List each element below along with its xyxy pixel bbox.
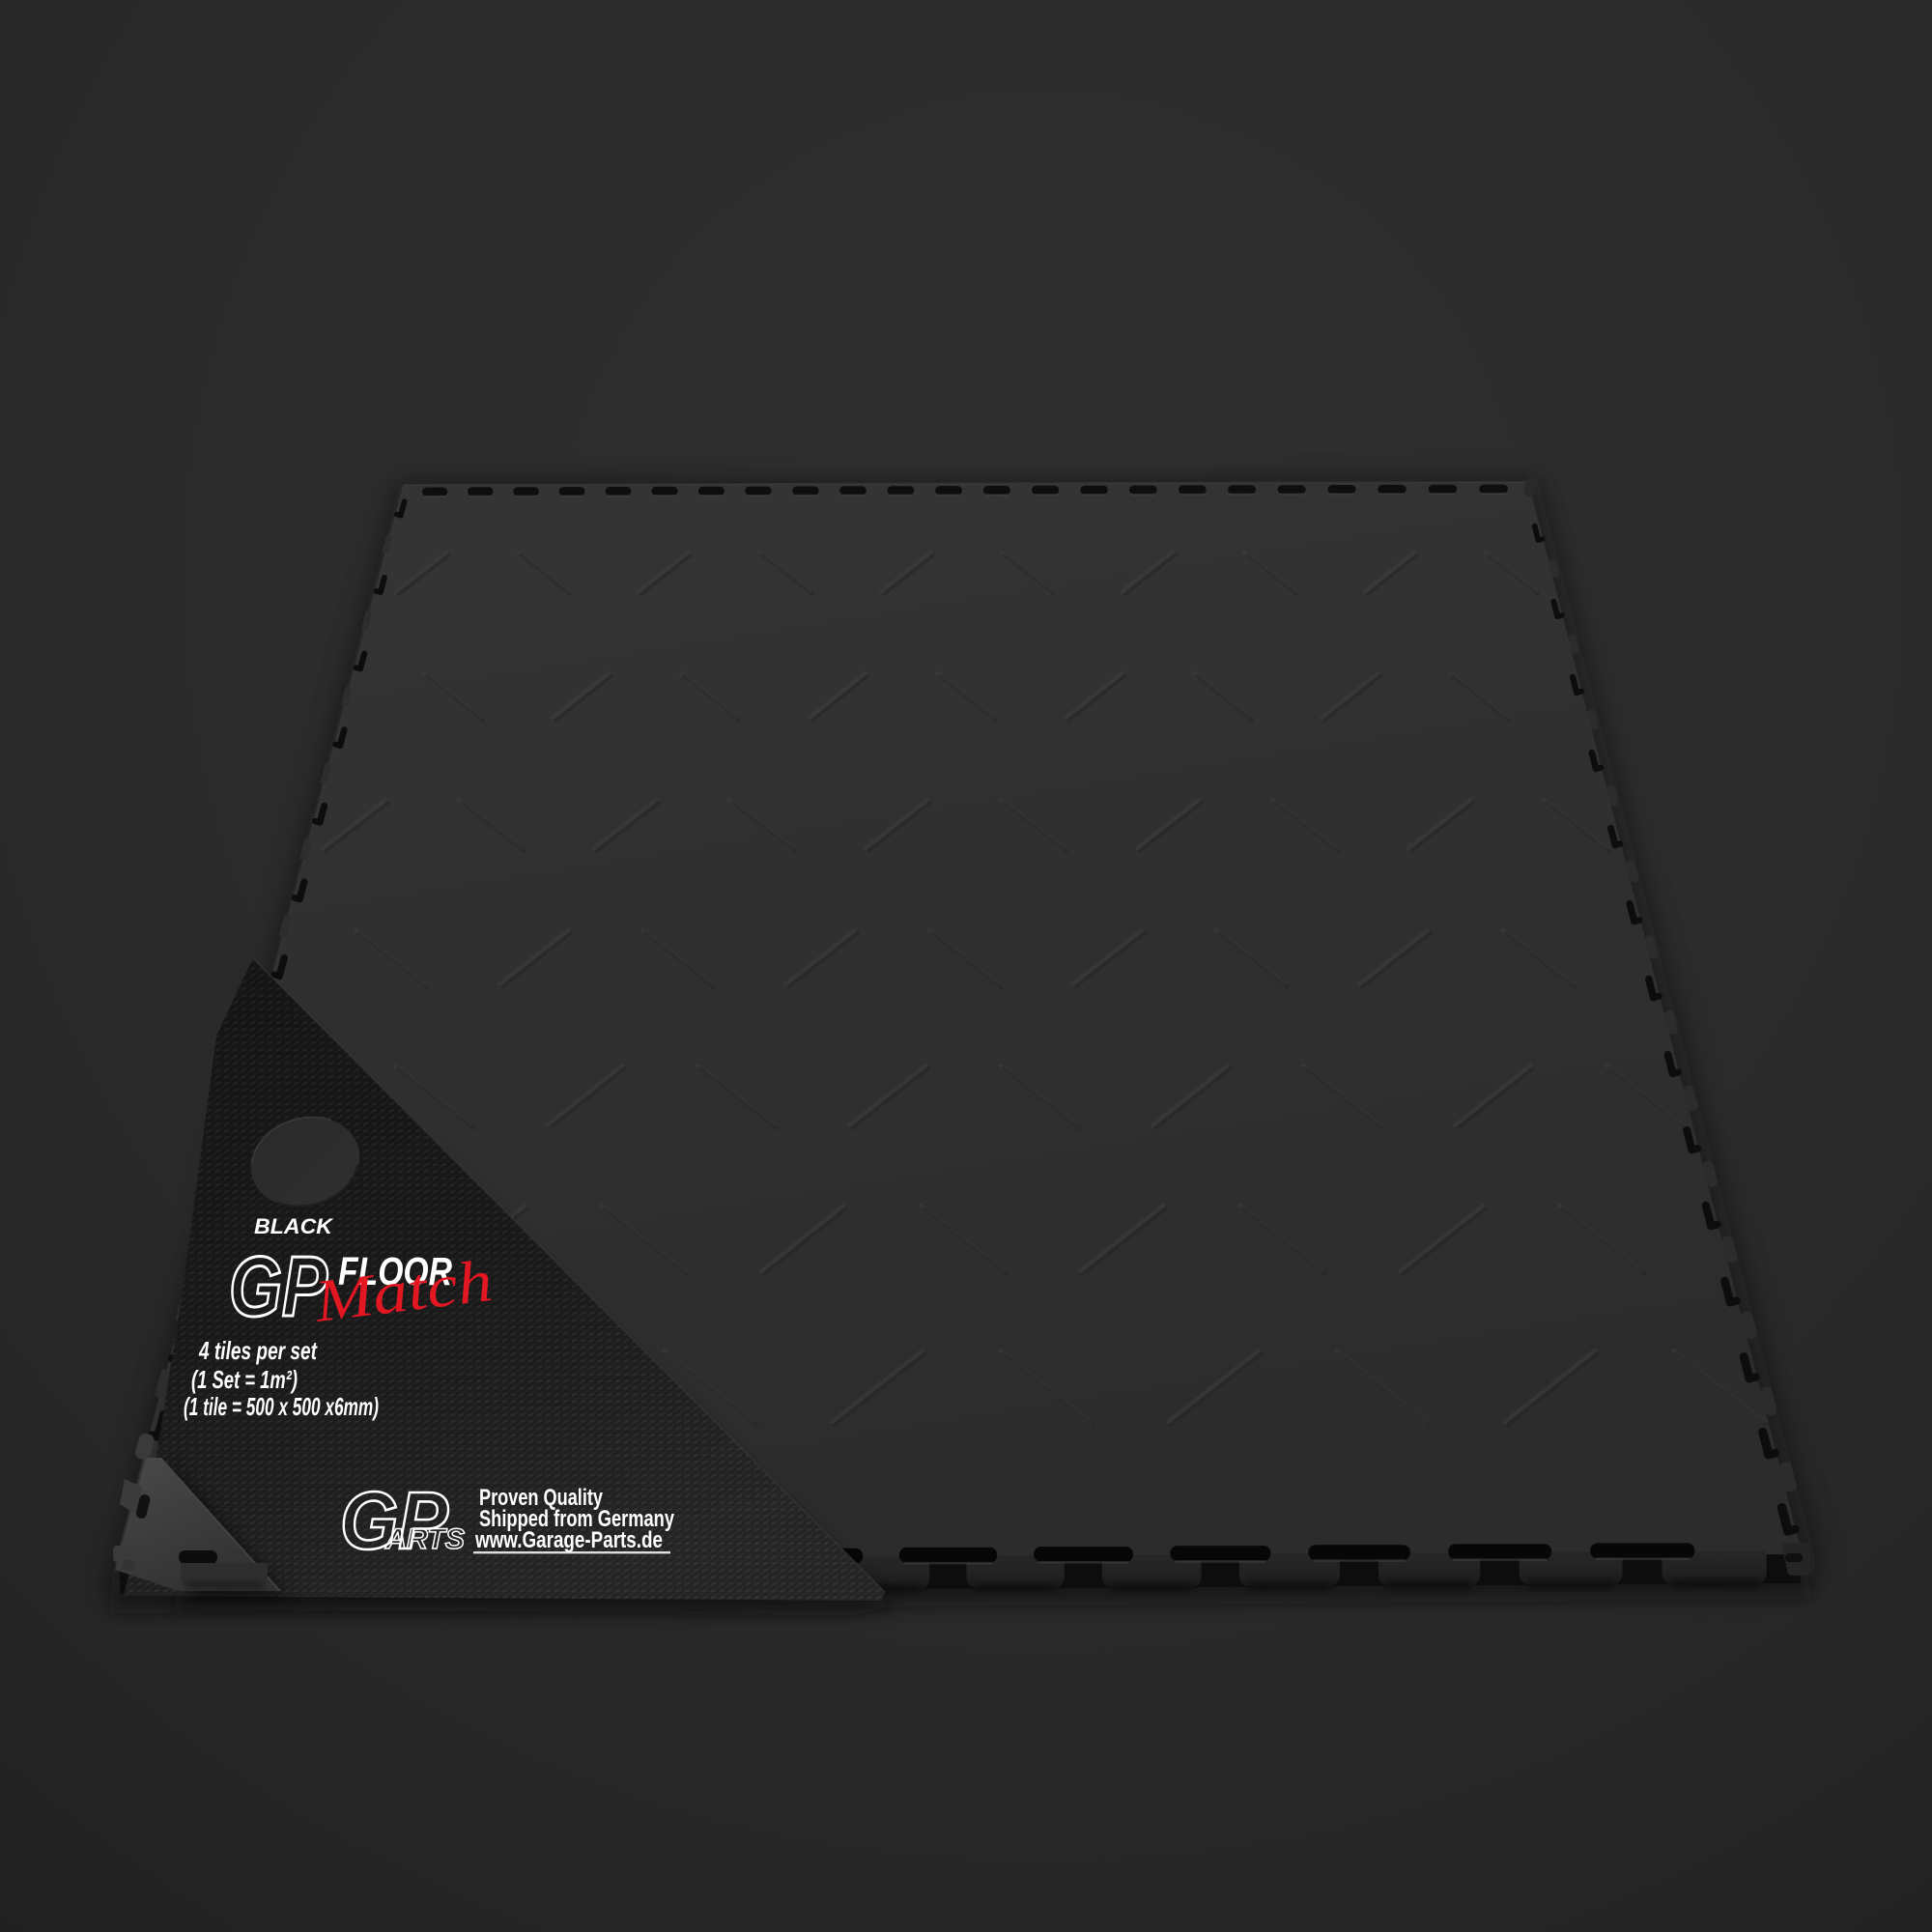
svg-text:(1 Set = 1m²): (1 Set = 1m²) bbox=[191, 1365, 298, 1394]
svg-text:www.Garage-Parts.de: www.Garage-Parts.de bbox=[474, 1527, 663, 1553]
svg-text:4 tiles per set: 4 tiles per set bbox=[198, 1336, 318, 1365]
svg-text:(1 tile = 500 x 500 x6mm): (1 tile = 500 x 500 x6mm) bbox=[184, 1392, 379, 1421]
svg-text:ARTS: ARTS bbox=[384, 1523, 465, 1555]
svg-text:BLACK: BLACK bbox=[254, 1214, 334, 1238]
